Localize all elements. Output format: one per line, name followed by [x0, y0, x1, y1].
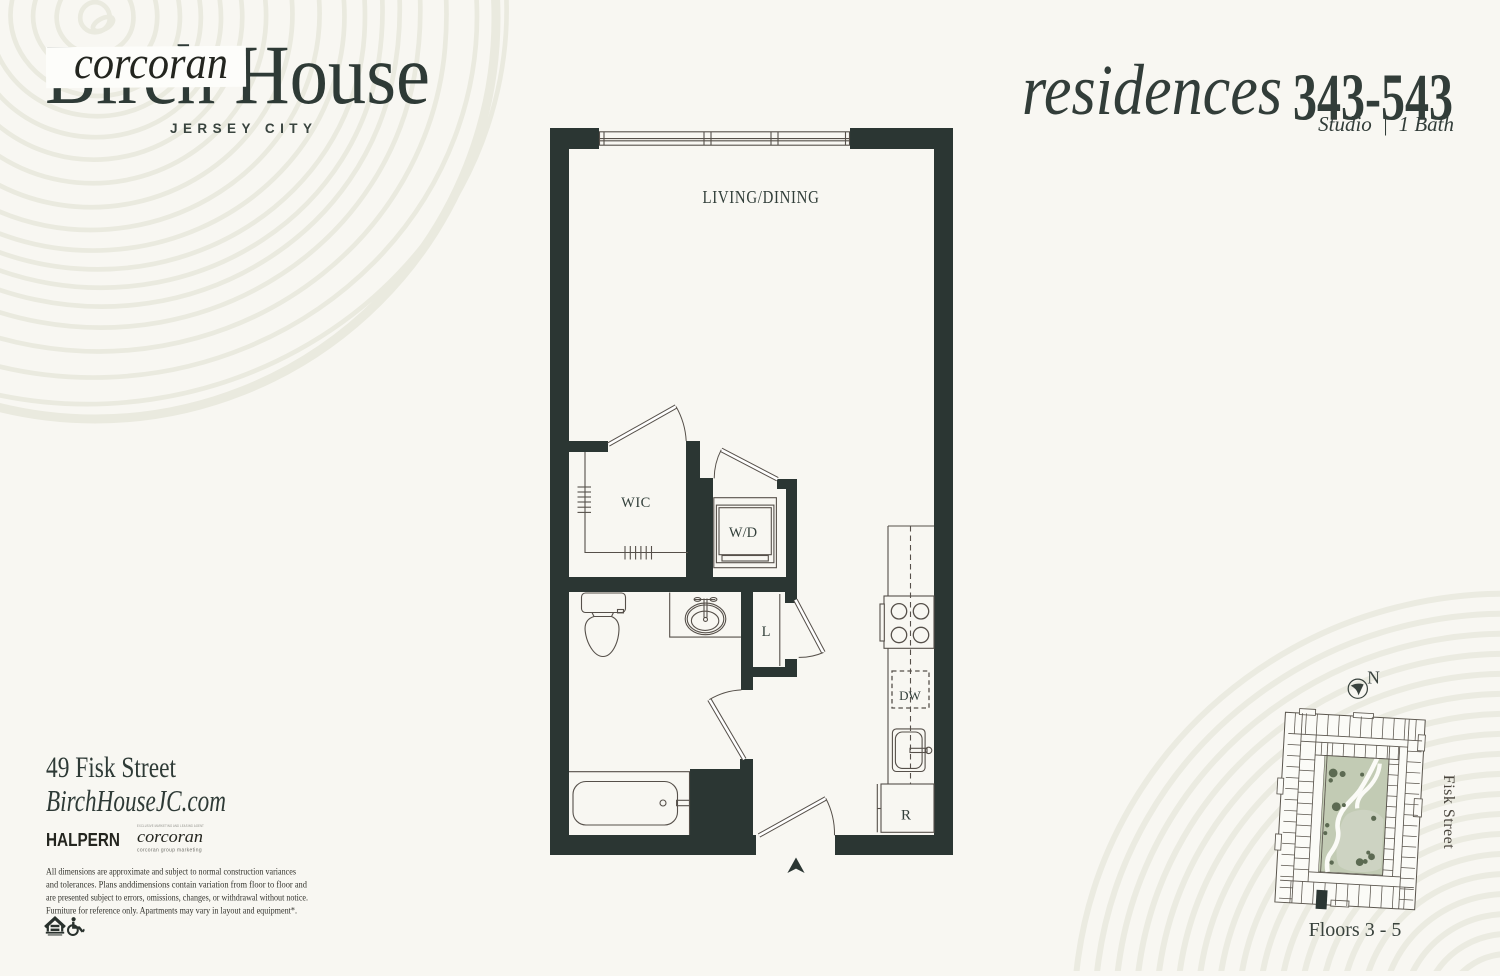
svg-text:corcoran: corcoran: [137, 827, 203, 846]
svg-text:Fisk Street: Fisk Street: [1440, 775, 1457, 849]
svg-text:HALPERN: HALPERN: [46, 830, 120, 850]
svg-text:and tolerances. Plans anddimen: and tolerances. Plans anddimensions cont…: [46, 880, 307, 890]
svg-text:W/D: W/D: [729, 525, 757, 541]
svg-text:are presented subject to error: are presented subject to errors, omissio…: [46, 893, 308, 903]
svg-text:R: R: [901, 808, 911, 824]
svg-text:LIVING/DINING: LIVING/DINING: [703, 187, 820, 207]
svg-text:Furniture for reference only.: Furniture for reference only. Apartments…: [46, 906, 297, 916]
svg-text:residences: residences: [1022, 50, 1282, 130]
svg-text:All dimensions are approximate: All dimensions are approximate and subje…: [46, 867, 296, 877]
svg-text:49 Fisk Street: 49 Fisk Street: [46, 751, 177, 784]
svg-text:BirchHouseJC.com: BirchHouseJC.com: [46, 783, 226, 818]
svg-text:Floors 3 - 5: Floors 3 - 5: [1309, 919, 1402, 941]
svg-text:Studio | 1 Bath: Studio | 1 Bath: [1318, 112, 1454, 136]
svg-text:JERSEY CITY: JERSEY CITY: [170, 121, 317, 136]
svg-text:N: N: [1367, 668, 1380, 688]
svg-text:WIC: WIC: [621, 495, 651, 511]
svg-text:corcoran: corcoran: [74, 38, 228, 88]
svg-text:L: L: [762, 624, 771, 640]
svg-text:corcoran group marketing: corcoran group marketing: [137, 848, 202, 854]
svg-text:DW: DW: [899, 688, 921, 703]
